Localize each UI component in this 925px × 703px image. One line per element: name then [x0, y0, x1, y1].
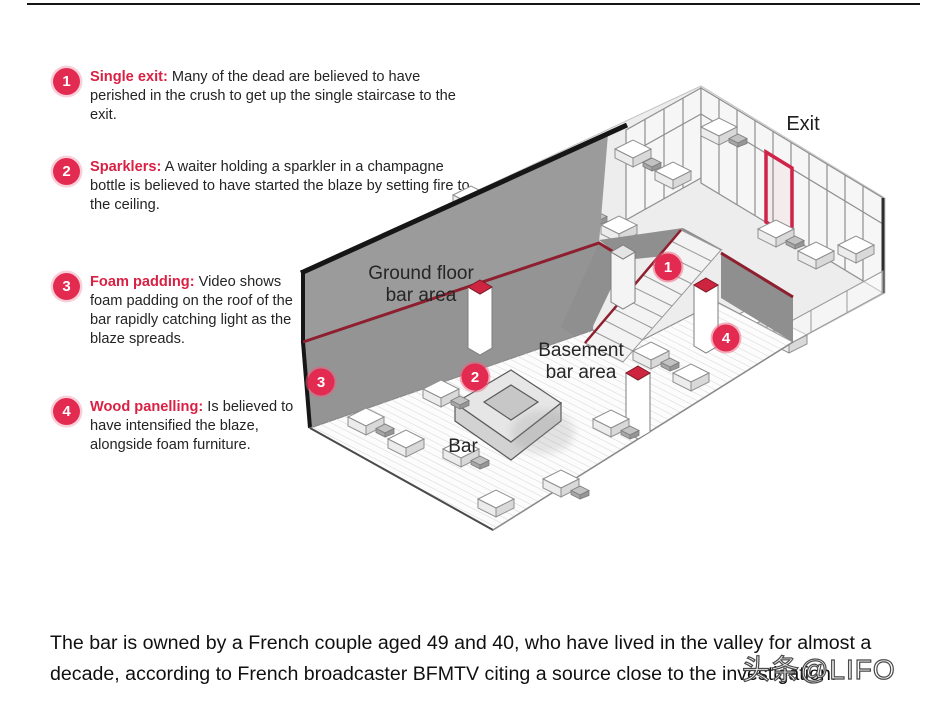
svg-text:3: 3	[317, 374, 325, 391]
label-exit: Exit	[786, 113, 820, 135]
svg-text:1: 1	[664, 259, 672, 276]
annotation-number-badge: 4	[53, 398, 80, 425]
annotation-number-badge: 3	[53, 273, 80, 300]
label-bar: Bar	[448, 436, 478, 457]
annotation-text: Foam padding: Video shows foam padding o…	[90, 273, 302, 349]
annotation-number-badge: 2	[53, 158, 80, 185]
annotation-text: Wood panelling: Is believed to have inte…	[90, 398, 302, 455]
annotation-item-3: 3 Foam padding: Video shows foam padding…	[53, 273, 315, 349]
label-basement-line1: Basement	[538, 340, 624, 361]
svg-text:2: 2	[471, 369, 479, 386]
marker-2: 2	[460, 362, 491, 393]
top-divider-rule	[27, 3, 920, 5]
annotation-title: Wood panelling:	[90, 399, 203, 415]
annotation-title: Sparklers:	[90, 159, 161, 175]
svg-text:4: 4	[722, 330, 731, 347]
watermark: 头条@LIFO	[742, 648, 896, 688]
label-ground-floor-line2: bar area	[386, 285, 457, 306]
infographic-page: 1 Single exit: Many of the dead are beli…	[0, 0, 925, 703]
annotation-title: Single exit:	[90, 69, 168, 85]
marker-4: 4	[711, 323, 742, 354]
blurred-watermark-smudge	[511, 410, 575, 454]
annotation-title: Foam padding:	[90, 274, 195, 290]
label-ground-floor-line1: Ground floor	[368, 263, 474, 284]
marker-1: 1	[653, 252, 684, 283]
label-basement-line2: bar area	[546, 362, 617, 383]
annotation-item-4: 4 Wood panelling: Is believed to have in…	[53, 398, 315, 455]
floorplan-diagram: Exit Ground floor bar area Basement bar …	[293, 80, 903, 552]
annotation-number-badge: 1	[53, 68, 80, 95]
marker-3: 3	[306, 367, 337, 398]
